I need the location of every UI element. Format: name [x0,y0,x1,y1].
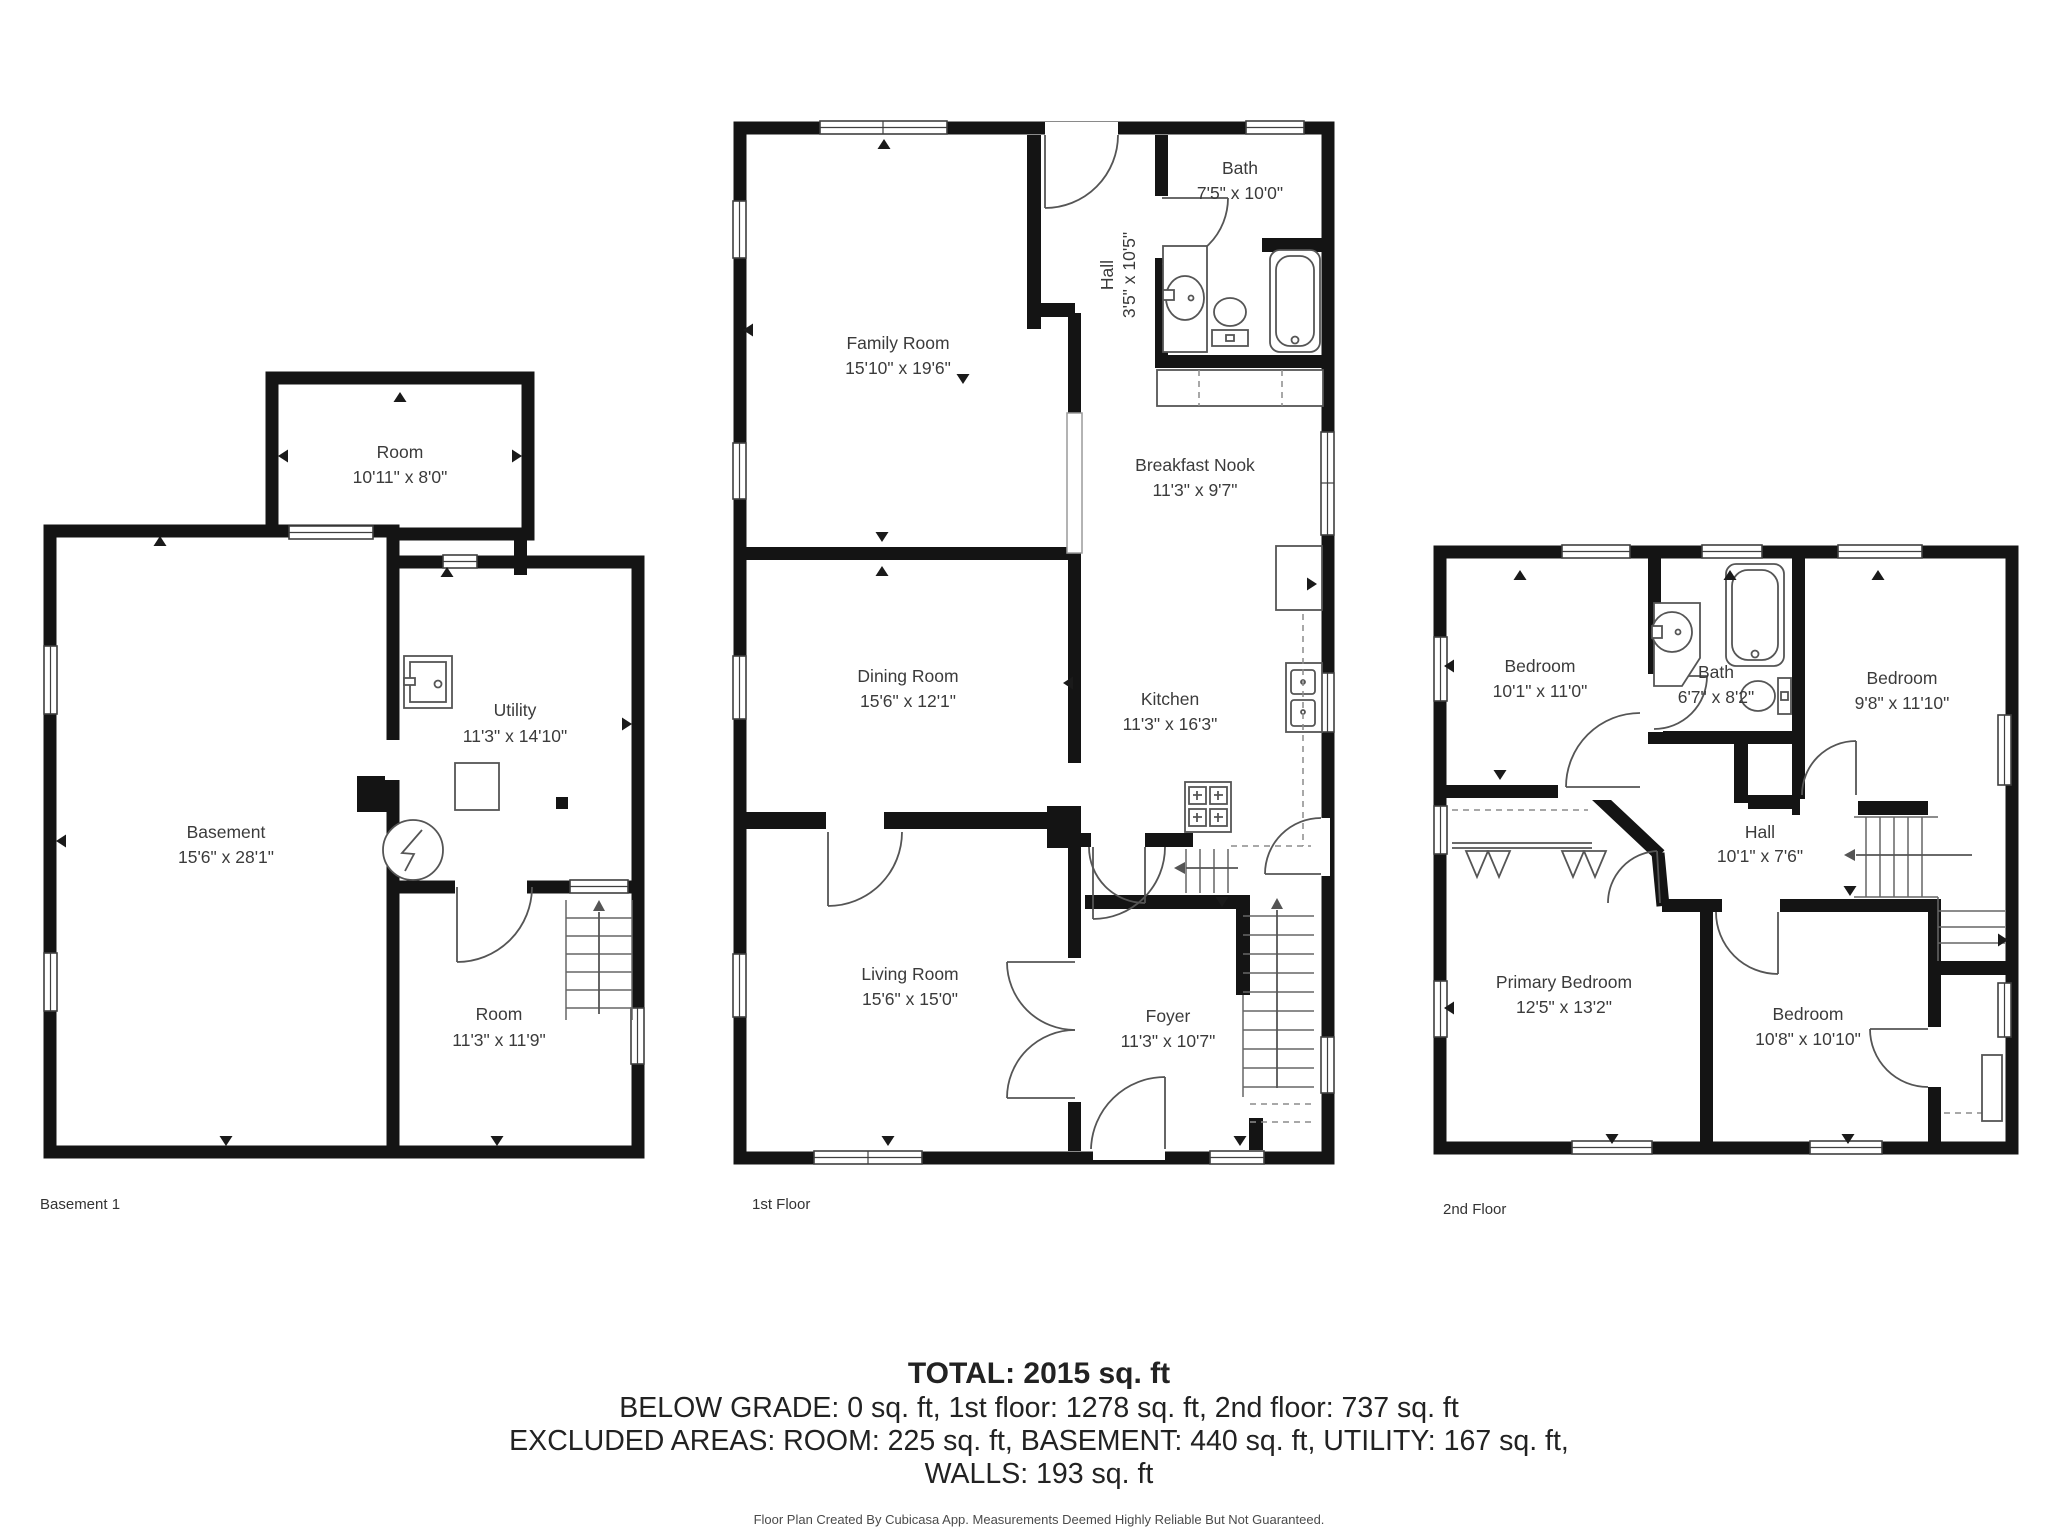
room-dims: 15'6" x 28'1" [178,847,274,867]
room-label: Living Room [861,964,958,984]
room-label: Breakfast Nook [1135,455,1255,475]
room-dims: 10'8" x 10'10" [1755,1029,1861,1049]
area-summary: TOTAL: 2015 sq. ft BELOW GRADE: 0 sq. ft… [30,1356,2048,1491]
room-label: Bedroom [1772,1004,1843,1024]
room-dims: 15'6" x 12'1" [860,691,956,711]
room-dims: 11'3" x 11'9" [452,1030,545,1050]
room-dims: 7'5" x 10'0" [1197,183,1283,203]
furnace-icon [455,763,499,810]
wall-stub [357,776,387,812]
disclaimer-text: Floor Plan Created By Cubicasa App. Meas… [30,1512,2048,1527]
first-floor-plan: Family Room 15'10" x 19'6" Bath 7'5" x 1… [733,121,1334,1164]
room-label: Bath [1698,662,1734,682]
room-dims: 12'5" x 13'2" [1516,997,1612,1017]
floor-caption-basement: Basement 1 [40,1196,120,1213]
room-dims: 10'1" x 11'0" [1493,681,1588,701]
room-dims: 11'3" x 9'7" [1153,480,1238,500]
room-label: Kitchen [1141,689,1199,709]
total-area-text: TOTAL: 2015 sq. ft [30,1356,2048,1392]
room-label: Utility [494,700,537,720]
first-floor-walls [740,122,1330,1160]
room-dims: 15'6" x 15'0" [862,989,958,1009]
kitchen-sink-icon [1286,663,1322,732]
walls-area-text: WALLS: 193 sq. ft [30,1458,2048,1491]
room-dims: 9'8" x 11'10" [1855,693,1950,713]
floor-plan-page: Room 10'11" x 8'0" Utility 11'3" x 14'10… [0,0,2048,1536]
room-label: Room [476,1004,523,1024]
room-dims: 11'3" x 14'10" [463,726,567,746]
basement-floor-plan: Room 10'11" x 8'0" Utility 11'3" x 14'10… [44,378,644,1152]
below-grade-text: BELOW GRADE: 0 sq. ft, 1st floor: 1278 s… [30,1392,2048,1425]
floor-plans-canvas: Room 10'11" x 8'0" Utility 11'3" x 14'10… [0,0,2048,1536]
room-dims: 11'3" x 16'3" [1123,714,1218,734]
room-label: Dining Room [857,666,958,686]
electrical-panel-icon [383,820,443,880]
closet-shelf [1982,1055,2002,1121]
room-label: Foyer [1146,1006,1191,1026]
room-label: Hall [1745,822,1775,842]
floor-caption-first: 1st Floor [752,1196,810,1213]
room-dims: 10'1" x 7'6" [1717,846,1803,866]
cased-opening [1067,413,1082,553]
wall-post [556,797,568,809]
room-dims: 11'3" x 10'7" [1121,1031,1216,1051]
floor-caption-second: 2nd Floor [1443,1201,1506,1218]
stove-icon [1185,782,1231,832]
room-dims: 6'7" x 8'2" [1678,687,1755,707]
room-dims: 15'10" x 19'6" [845,358,951,378]
room-label: Family Room [846,333,949,353]
fridge-icon [1276,546,1322,610]
bath-counter [1157,370,1323,406]
room-dims: 10'11" x 8'0" [353,467,448,487]
excluded-areas-text: EXCLUDED AREAS: ROOM: 225 sq. ft, BASEME… [30,1425,2048,1458]
basement-walls [50,378,638,1152]
room-label: Bath [1222,158,1258,178]
room-label: Basement [187,822,266,842]
room-label: Bedroom [1504,656,1575,676]
sink-icon [1163,246,1207,352]
room-label: Bedroom [1866,668,1937,688]
room-label: Primary Bedroom [1496,972,1632,992]
water-heater-icon [404,656,452,708]
room-label: Room [377,442,424,462]
bathtub-icon [1270,250,1320,352]
second-floor-plan: Bedroom 10'1" x 11'0" Bath 6'7" x 8'2" B… [1434,545,2012,1154]
